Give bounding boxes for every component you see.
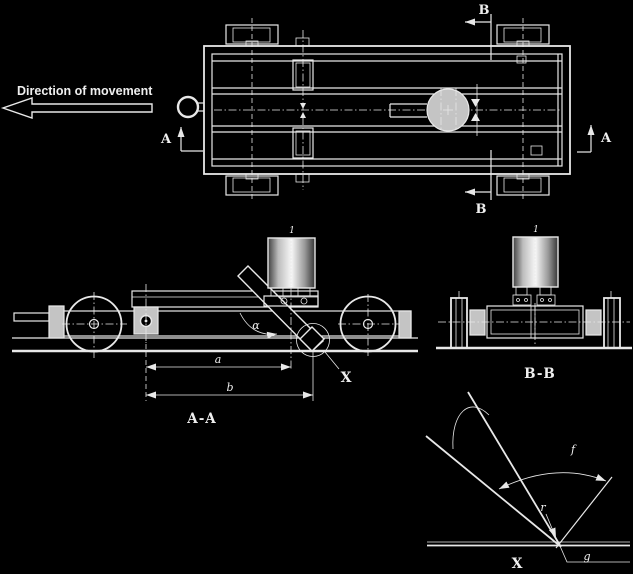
tow-hook	[178, 97, 204, 117]
section-line-a: A A	[160, 125, 612, 152]
wheel-rear	[338, 294, 400, 356]
chassis-frame	[63, 311, 411, 336]
dim-b-label: b	[226, 381, 233, 394]
tool-face-trailing	[426, 436, 560, 546]
wheel-box-bottom-right	[497, 174, 549, 195]
section-bb-view: 1	[436, 225, 632, 382]
motor-body-bb	[513, 237, 558, 287]
view-title-bb: B-B	[524, 366, 556, 382]
angle-reference-leg	[556, 477, 612, 548]
dim-a-label: a	[215, 353, 222, 366]
axle-box-left	[470, 310, 485, 335]
section-marker-a-left: A	[160, 132, 172, 147]
detail-x-callout: X	[341, 370, 352, 386]
frame-center-channel	[212, 88, 562, 132]
dimension-lines-aa: a b	[146, 288, 313, 401]
angle-alpha-label: α	[252, 319, 260, 332]
direction-arrow	[3, 98, 152, 118]
angle-arc-f	[499, 473, 606, 489]
direction-of-movement-label: Direction of movement	[17, 84, 153, 98]
axle-box-right	[586, 310, 601, 335]
motor-callout-bb: 1	[533, 225, 539, 235]
trolley-technical-drawing: Direction of movement	[0, 0, 633, 574]
drawbar-block	[49, 306, 64, 338]
interior-bracket-bottom	[531, 146, 542, 155]
detail-g-label: g	[583, 550, 590, 563]
wheel-box-bottom-left	[226, 174, 278, 195]
section-aa-view: 1 α X a b A-A	[12, 226, 418, 427]
pivot-beam	[132, 291, 318, 307]
wheel-left-bb	[451, 291, 467, 348]
wheel-right-bb	[604, 291, 620, 348]
motor-body-aa	[268, 238, 315, 288]
face-connector-curve	[453, 407, 489, 449]
g-leader	[560, 546, 630, 562]
tool-face-leading	[468, 392, 561, 547]
drawbar-shaft	[14, 313, 49, 321]
plan-view: Direction of movement	[3, 3, 612, 217]
section-marker-b-bottom: B	[476, 202, 487, 217]
interior-bracket-top	[517, 56, 526, 63]
wheel-front	[62, 292, 127, 358]
patent-drawing-page: Direction of movement	[0, 0, 633, 574]
detail-f-label: f	[570, 443, 577, 456]
section-marker-b-top: B	[479, 3, 490, 18]
view-title-aa: A-A	[186, 411, 217, 427]
vibrator-motor-bb: 1	[513, 225, 558, 305]
detail-title-x: X	[512, 556, 523, 572]
rear-buffer-block	[399, 311, 411, 338]
detail-x-view: f r g X	[426, 392, 630, 572]
detail-r-label: r	[540, 501, 546, 514]
section-marker-a-right: A	[600, 131, 612, 146]
motor-callout-aa: 1	[289, 226, 295, 236]
